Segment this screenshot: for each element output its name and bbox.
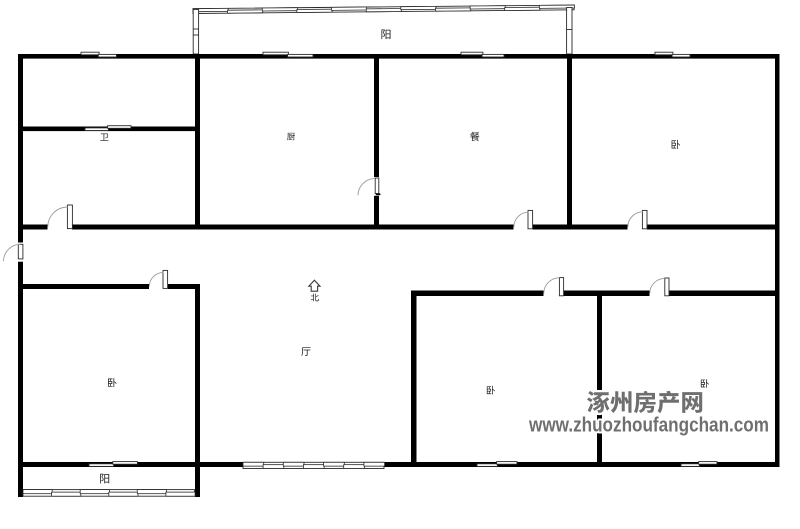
- svg-text:www.zhuozhoufangchan.com: www.zhuozhoufangchan.com: [528, 415, 769, 437]
